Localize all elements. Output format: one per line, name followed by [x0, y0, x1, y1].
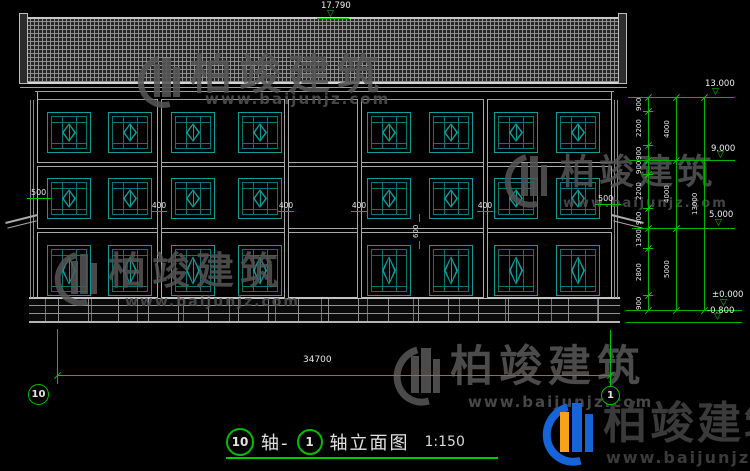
dim-label: 5000 [664, 255, 674, 283]
dimension-chain-line [704, 97, 705, 310]
elevation-value: 13.000 [705, 80, 735, 89]
dim-label: 2200 [636, 177, 646, 205]
column-width-dim-line [477, 211, 493, 212]
level-line [626, 322, 742, 323]
column-width-dim-line [351, 211, 367, 212]
bottom-dim-ext-right [610, 330, 611, 386]
column-width-dim-line [278, 211, 294, 212]
title: 10 轴- 1 轴立面图 1:150 [226, 428, 465, 456]
title-underline [226, 457, 498, 459]
title-axis-start-bubble: 10 [226, 428, 254, 456]
dimension-layer: 9002200900900220090013002800900400040005… [0, 0, 750, 471]
dim-label: 4000 [664, 180, 674, 208]
left-overhang-label: 500 [31, 189, 46, 197]
triangle-down-icon: ▽ [714, 313, 721, 322]
level-line [632, 228, 735, 229]
level-line [630, 160, 735, 161]
total-width-label: 34700 [303, 356, 332, 365]
dim-label: 2200 [636, 114, 646, 142]
dimension-chain-line [648, 97, 649, 310]
column-width-label: 400 [277, 202, 295, 210]
spandrel-dim-line [419, 241, 420, 249]
title-axis-end-bubble: 1 [297, 429, 323, 455]
spandrel-height-label: 600 [413, 222, 423, 240]
ridge-marker-line [317, 18, 349, 19]
column-width-dim-line [151, 211, 167, 212]
elevation-value: ±0.000 [712, 291, 743, 300]
right-overhang-line [595, 204, 621, 205]
triangle-down-icon: ▽ [717, 151, 724, 160]
left-overhang-line [27, 198, 51, 199]
elevation-value: 17.790 [321, 2, 351, 11]
title-axis-label-left: 轴- [261, 429, 290, 455]
column-width-label: 400 [350, 202, 368, 210]
level-line [628, 97, 734, 98]
axis-bubble-1: 1 [601, 386, 620, 405]
dim-label: 2800 [636, 258, 646, 286]
title-drawing-name: 轴立面图 [330, 429, 410, 455]
spandrel-dim-line [419, 214, 420, 222]
axis-bubble-10: 10 [28, 384, 49, 405]
dimension-chain-line [676, 97, 677, 310]
bottom-dim-line [57, 375, 611, 376]
dim-label: 900 [636, 289, 646, 317]
column-width-label: 400 [150, 202, 168, 210]
title-scale: 1:150 [425, 434, 465, 450]
right-overhang-label: 500 [598, 195, 613, 203]
triangle-down-icon: ▽ [715, 219, 722, 228]
triangle-down-icon: ▽ [712, 88, 719, 97]
elevation-drawing-canvas: 柏竣建筑 www.baijunjz.com 柏竣建筑 www.baijunjz.… [0, 0, 750, 471]
column-width-label: 400 [476, 202, 494, 210]
dim-label: 13000 [692, 190, 702, 218]
dim-label: 4000 [664, 115, 674, 143]
